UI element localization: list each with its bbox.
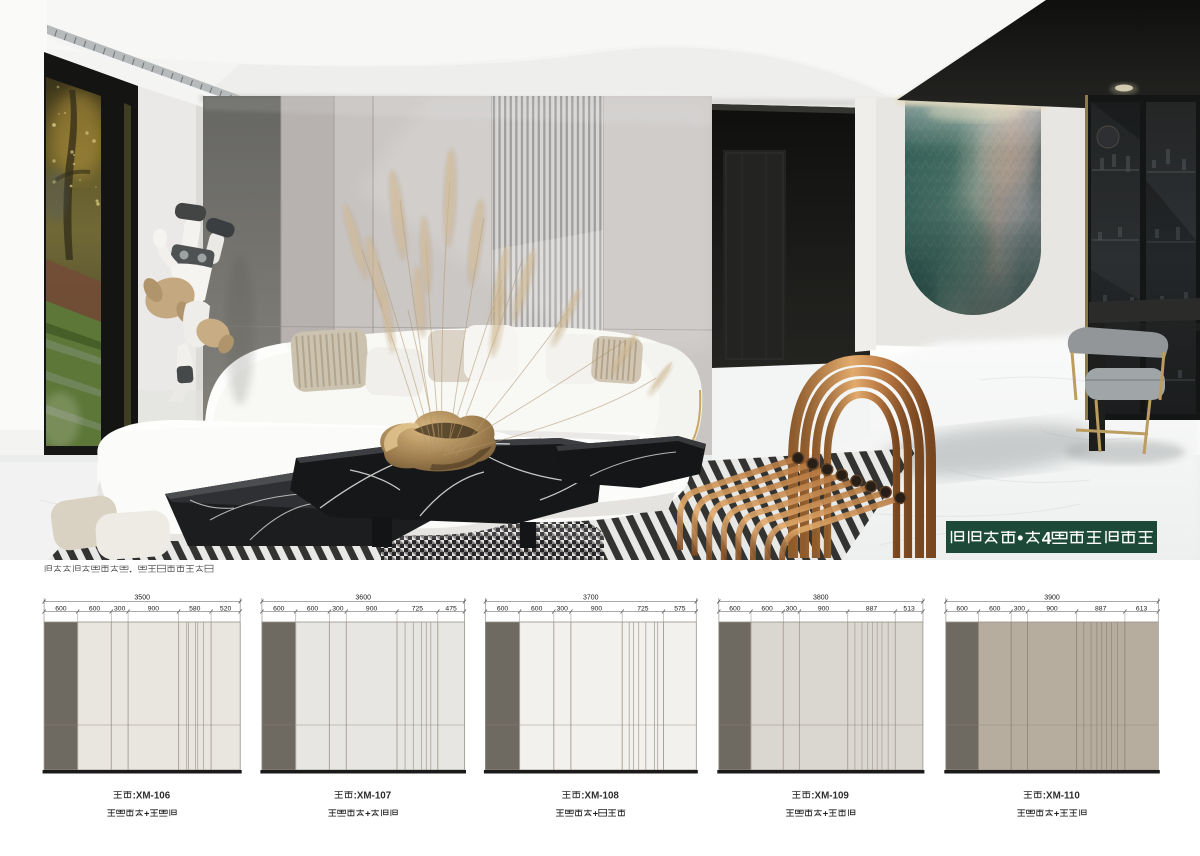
svg-text:3500: 3500 bbox=[134, 595, 150, 602]
svg-text:+: + bbox=[593, 809, 599, 819]
svg-text:600: 600 bbox=[273, 605, 285, 612]
svg-text:900: 900 bbox=[818, 605, 830, 612]
svg-text:3600: 3600 bbox=[355, 595, 371, 602]
svg-text:575: 575 bbox=[674, 605, 686, 612]
svg-text:900: 900 bbox=[591, 605, 603, 612]
svg-text:600: 600 bbox=[307, 605, 319, 612]
svg-text:300: 300 bbox=[557, 605, 569, 612]
svg-text::XM-110: :XM-110 bbox=[1043, 791, 1081, 802]
svg-text::XM-108: :XM-108 bbox=[581, 791, 619, 802]
svg-text:887: 887 bbox=[1095, 605, 1107, 612]
svg-text:3900: 3900 bbox=[1044, 595, 1060, 602]
svg-text:300: 300 bbox=[332, 605, 344, 612]
svg-text::XM-109: :XM-109 bbox=[811, 791, 849, 802]
svg-text:600: 600 bbox=[989, 605, 1001, 612]
svg-text:520: 520 bbox=[220, 605, 232, 612]
svg-text:600: 600 bbox=[729, 605, 741, 612]
svg-text:300: 300 bbox=[114, 605, 126, 612]
svg-text:600: 600 bbox=[761, 605, 773, 612]
svg-text:475: 475 bbox=[445, 605, 457, 612]
svg-text:3800: 3800 bbox=[813, 595, 829, 602]
svg-text:513: 513 bbox=[903, 605, 915, 612]
svg-text:3700: 3700 bbox=[583, 595, 599, 602]
svg-text::XM-106: :XM-106 bbox=[133, 791, 171, 802]
svg-text:600: 600 bbox=[497, 605, 509, 612]
svg-text::XM-107: :XM-107 bbox=[354, 791, 392, 802]
svg-text:600: 600 bbox=[55, 605, 67, 612]
svg-text:+: + bbox=[144, 809, 150, 819]
svg-text:+: + bbox=[365, 809, 371, 819]
svg-text:725: 725 bbox=[637, 605, 649, 612]
svg-text:887: 887 bbox=[866, 605, 878, 612]
svg-text:300: 300 bbox=[1014, 605, 1026, 612]
svg-text:+: + bbox=[1054, 809, 1060, 819]
svg-text:580: 580 bbox=[189, 605, 201, 612]
svg-text:613: 613 bbox=[1136, 605, 1148, 612]
svg-text:600: 600 bbox=[956, 605, 968, 612]
svg-text:600: 600 bbox=[89, 605, 101, 612]
svg-text:725: 725 bbox=[412, 605, 424, 612]
svg-text:900: 900 bbox=[148, 605, 160, 612]
svg-text:300: 300 bbox=[786, 605, 798, 612]
svg-text:600: 600 bbox=[531, 605, 543, 612]
svg-text:900: 900 bbox=[366, 605, 378, 612]
svg-text:900: 900 bbox=[1046, 605, 1058, 612]
svg-text:+: + bbox=[823, 809, 829, 819]
